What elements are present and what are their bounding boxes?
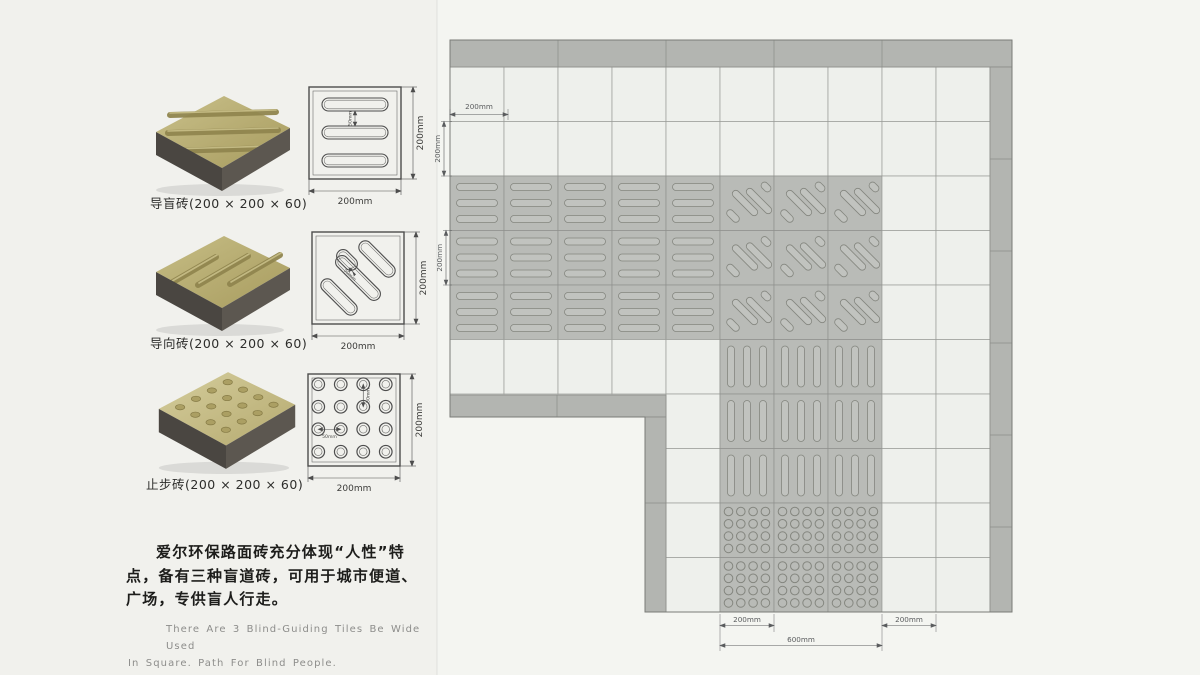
product-label-direction-tile: 导向砖(200 × 200 × 60) — [150, 333, 307, 352]
en-line-1: There Are 3 Blind-Guiding Tiles Be Wide … — [128, 621, 430, 655]
tile-3d-block — [156, 96, 290, 191]
inner-spacing-dim: 50mm — [348, 111, 354, 126]
plan-dim-bottom-path: 600mm — [787, 635, 815, 644]
drawing-square — [308, 374, 400, 466]
cn-line-3: 广场，专供盲人行走。 — [126, 588, 432, 612]
plan-dim-top: 200mm — [465, 102, 493, 111]
plan-dim-bottom-right: 200mm — [895, 615, 923, 624]
drawing-dots — [312, 378, 392, 458]
plan-dim-left-upper: 200mm — [435, 135, 442, 163]
description-english: There Are 3 Blind-Guiding Tiles Be Wide … — [128, 621, 430, 672]
catalog-page: 导盲砖(200 × 200 × 60) 导向砖(200 × 200 × 6 — [0, 0, 1200, 675]
plan-dim-bottom-tile: 200mm — [733, 615, 761, 624]
height-dim: 200mm — [419, 261, 429, 296]
dot-spacing-v-dim: 50mm — [366, 388, 372, 403]
tile-3d-block — [156, 236, 290, 331]
description-chinese: 爱尔环保路面砖充分体现“人性”特 点，备有三种盲道砖，可用于城市便道、 广场，专… — [126, 541, 432, 612]
drawing-direction-tile: 50mm 200mm 200mm — [309, 229, 437, 353]
width-dim: 200mm — [338, 197, 373, 207]
drawing-square — [312, 232, 404, 324]
paving-layout-plan: 200mm200mm200mm200mm200mm600mm — [435, 20, 1027, 670]
product-label-stop-tile: 止步砖(200 × 200 × 60) — [146, 474, 303, 493]
height-dim: 200mm — [416, 116, 426, 151]
drawing-stop-tile: 50mm 50mm 200mm 200mm — [305, 371, 433, 495]
height-dim: 200mm — [415, 403, 425, 438]
tile-3d-block — [159, 372, 295, 469]
en-line-2: In Square. Path For Blind People. — [128, 655, 430, 672]
tile-photo-stop-dots — [148, 362, 304, 476]
product-label-guide-tile: 导盲砖(200 × 200 × 60) — [150, 193, 307, 212]
drawing-guide-tile: 50mm 200mm 200mm — [306, 84, 434, 208]
plan-dim-left-lower: 200mm — [435, 244, 444, 272]
width-dim: 200mm — [337, 484, 372, 494]
plan-tiles — [450, 67, 990, 612]
drawing-square — [309, 87, 401, 179]
tile-photo-guide-bars — [146, 86, 298, 198]
dot-spacing-h-dim: 50mm — [322, 434, 337, 440]
cn-line-2: 点，备有三种盲道砖，可用于城市便道、 — [126, 565, 432, 589]
tile-photo-direction-bars — [146, 226, 298, 338]
cn-line-1: 爱尔环保路面砖充分体现“人性”特 — [126, 541, 432, 565]
width-dim: 200mm — [341, 342, 376, 352]
